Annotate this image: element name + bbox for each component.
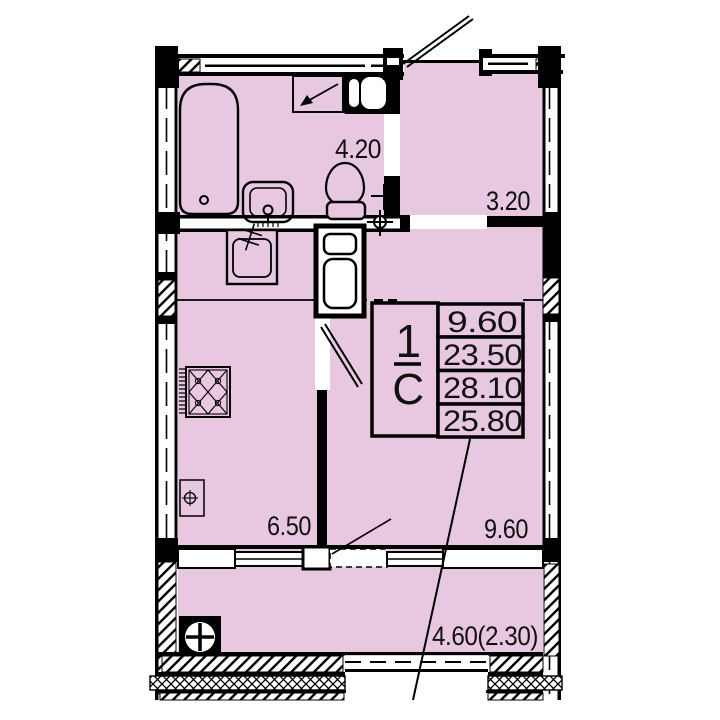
washing-machine-place [293, 76, 343, 112]
area-value: 28.10 [443, 372, 522, 405]
wall-insulation-hatch [543, 278, 559, 314]
wall-line [158, 229, 410, 233]
wall-insulation-hatch [158, 280, 175, 316]
toilet [326, 163, 365, 219]
dashed-opening [330, 549, 387, 567]
hallway-area-label: 3.20 [486, 186, 530, 216]
washer-unit [344, 72, 388, 114]
bathroom-door-opening [384, 114, 400, 176]
partition-wall [317, 390, 327, 554]
vent-shaft-icon [179, 616, 221, 658]
area-value: 9.60 [447, 306, 517, 339]
kitchen-door-block [316, 226, 364, 316]
kitchen-area-label: 6.50 [267, 511, 311, 541]
area-value: 25.80 [443, 405, 522, 438]
area-value: 23.50 [443, 339, 522, 372]
kitchen-cabinet [180, 480, 204, 516]
unit-type-label: С [392, 365, 423, 414]
wall-line [158, 215, 410, 219]
rooms-count-label: 1 [395, 315, 420, 367]
wall-insulation-hatch [544, 564, 559, 656]
hall-opening [410, 215, 487, 229]
hall-bottom-wall [487, 216, 543, 227]
floor-plan: 1 С 9.60 23.50 28.10 25.80 4.20 3.20 6.5… [0, 0, 720, 720]
living-room-area-label: 9.60 [484, 514, 528, 544]
kitchen-sink [227, 220, 277, 284]
wall-cap [400, 215, 410, 232]
balcony-door [303, 547, 330, 569]
stove [179, 367, 230, 417]
unit-info-table: 1 С 9.60 23.50 28.10 25.80 [372, 299, 523, 438]
balcony-window-wall [158, 545, 543, 569]
bathroom-area-label: 4.20 [335, 134, 381, 164]
balcony-area-label: 4.60(2.30) [432, 621, 538, 651]
floor-plan-drawing: 1 С 9.60 23.50 28.10 25.80 4.20 3.20 6.5… [0, 0, 720, 720]
